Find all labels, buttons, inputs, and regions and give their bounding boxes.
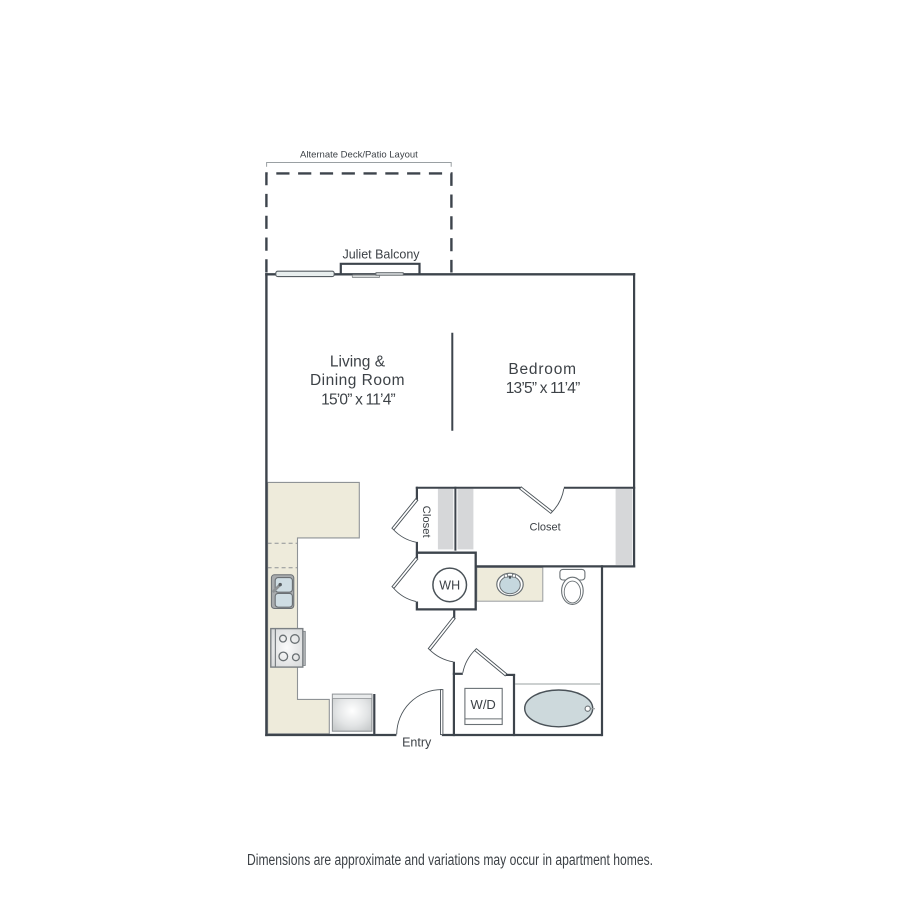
svg-text:Bedroom: Bedroom: [508, 361, 577, 378]
svg-text:Alternate Deck/Patio Layout: Alternate Deck/Patio Layout: [300, 150, 418, 161]
svg-text:Dimensions are approximate and: Dimensions are approximate and variation…: [247, 852, 653, 869]
svg-text:Closet: Closet: [530, 522, 561, 534]
svg-text:Entry: Entry: [402, 736, 432, 750]
svg-text:Juliet Balcony: Juliet Balcony: [342, 248, 420, 262]
svg-text:Dining Room: Dining Room: [310, 372, 405, 389]
svg-text:WH: WH: [439, 578, 460, 592]
svg-text:Living &: Living &: [330, 354, 386, 371]
svg-text:15’0” x 11’4”: 15’0” x 11’4”: [321, 392, 395, 409]
svg-text:13’5” x 11’4”: 13’5” x 11’4”: [506, 380, 580, 397]
svg-text:W/D: W/D: [471, 697, 496, 712]
svg-text:Closet: Closet: [420, 506, 432, 539]
